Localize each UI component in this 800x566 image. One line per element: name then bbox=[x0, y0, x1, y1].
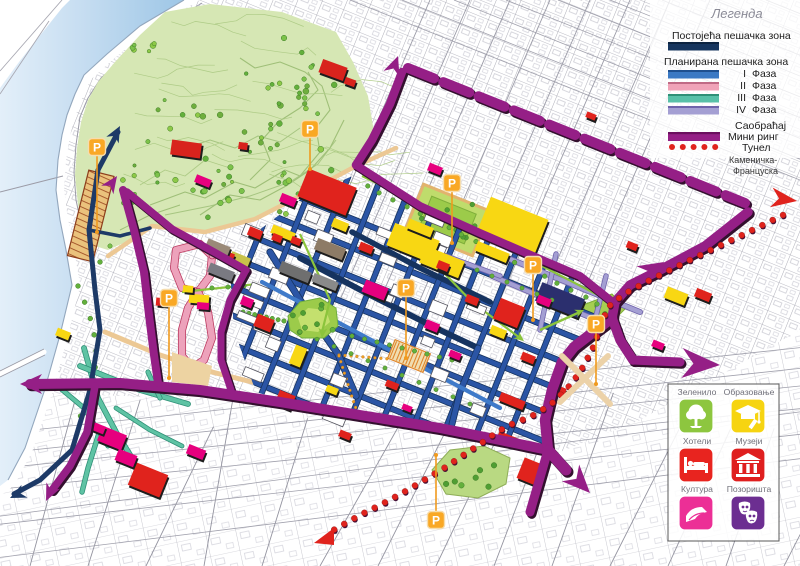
svg-text:Зеленило: Зеленило bbox=[678, 387, 717, 397]
svg-text:Култура: Култура bbox=[681, 484, 713, 494]
svg-text:Фаза: Фаза bbox=[752, 80, 777, 92]
svg-text:I: I bbox=[743, 68, 746, 80]
svg-text:Образовање: Образовање bbox=[724, 387, 775, 397]
svg-text:Фаза: Фаза bbox=[752, 92, 777, 104]
svg-text:P: P bbox=[402, 282, 410, 296]
svg-text:Каменичка-: Каменичка- bbox=[729, 155, 777, 165]
svg-text:Фаза: Фаза bbox=[752, 68, 777, 80]
svg-text:P: P bbox=[448, 177, 456, 191]
svg-text:Хотели: Хотели bbox=[683, 436, 712, 446]
svg-text:Планирана пешачка зона: Планирана пешачка зона bbox=[664, 56, 788, 68]
svg-text:P: P bbox=[93, 141, 101, 155]
svg-text:Легенда: Легенда bbox=[710, 6, 762, 21]
svg-text:Позоришта: Позоришта bbox=[727, 484, 772, 494]
svg-text:P: P bbox=[592, 318, 600, 332]
svg-text:Фаза: Фаза bbox=[752, 104, 777, 116]
svg-text:P: P bbox=[432, 514, 440, 528]
svg-text:Француска: Француска bbox=[733, 166, 778, 176]
svg-text:P: P bbox=[306, 123, 314, 137]
svg-text:P: P bbox=[165, 292, 173, 306]
svg-text:P: P bbox=[529, 259, 537, 273]
svg-text:Музеји: Музеји bbox=[736, 436, 763, 446]
svg-text:Тунел: Тунел bbox=[742, 142, 771, 154]
svg-text:IV: IV bbox=[736, 104, 746, 116]
svg-text:III: III bbox=[737, 92, 746, 104]
svg-text:Постојећа пешачка зона: Постојећа пешачка зона bbox=[672, 30, 791, 42]
svg-text:II: II bbox=[740, 80, 746, 92]
